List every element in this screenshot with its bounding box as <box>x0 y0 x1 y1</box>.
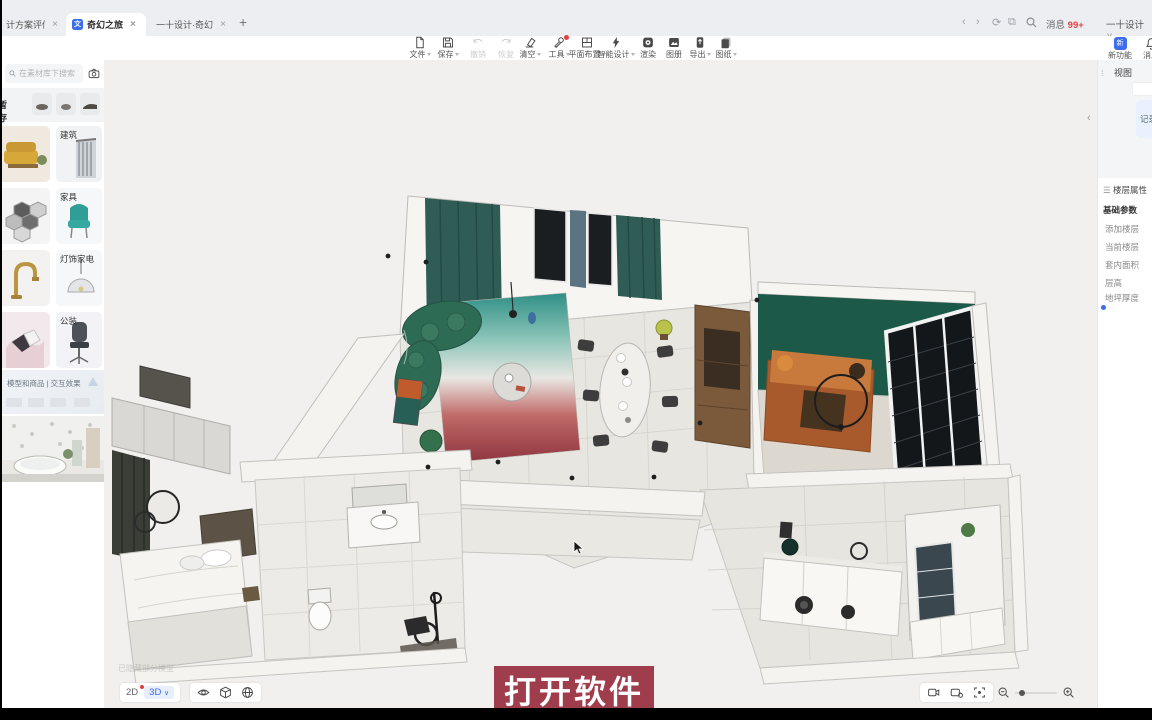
floorplan-3d-view <box>104 60 1097 708</box>
promo-banner[interactable]: 模型和商品 | 交互效果 <box>2 370 104 414</box>
zoom-slider[interactable] <box>1015 692 1057 694</box>
category-card-furniture[interactable]: 家具 <box>56 188 102 244</box>
bell-icon <box>1145 37 1152 50</box>
viewport-3d[interactable]: 已隐藏部分模型 2D 3D ∨ <box>104 60 1097 708</box>
banner-logo-icon <box>86 374 100 388</box>
partner-logo <box>50 398 66 407</box>
save-icon <box>441 36 455 49</box>
panel-row-slab-thickness[interactable]: 地坪厚度 <box>1105 292 1139 304</box>
camera-settings-button[interactable] <box>950 686 963 699</box>
hidden-items-watermark: 已隐藏部分模型 <box>118 663 174 674</box>
notifications-button[interactable]: 消息 <box>1136 37 1152 61</box>
close-icon[interactable]: × <box>220 19 226 30</box>
app-window: 计方案评估 - 副本 × 文 奇幻之旅 × 一十设计·奇幻之旅 × + ‹ › … <box>0 0 1152 720</box>
record-view-button[interactable]: 记录 <box>1136 100 1152 138</box>
zoom-controls <box>997 683 1075 702</box>
tab-title: 一十设计·奇幻之旅 <box>156 18 213 31</box>
sheets-icon <box>719 36 733 49</box>
screenshot-button[interactable] <box>927 686 940 699</box>
tiles-image <box>0 188 50 244</box>
zoom-in-icon[interactable] <box>1062 686 1075 699</box>
messages-badge: 99+ <box>1068 20 1084 31</box>
undo-icon <box>471 36 485 49</box>
back-icon[interactable]: ‹ <box>962 16 966 28</box>
file-icon <box>413 36 427 49</box>
category-card-commercial[interactable]: 公装 <box>56 312 102 368</box>
tab-title: 计方案评估 - 副本 <box>6 18 45 31</box>
view-section: ⁞ 视图 记录 <box>1098 60 1152 178</box>
partner-logo <box>28 398 44 407</box>
account-label: 一十设计 <box>1106 20 1144 31</box>
globe-button[interactable] <box>241 686 254 699</box>
promo-image-bathroom[interactable] <box>2 416 104 482</box>
panel-row-interior-area[interactable]: 套内面积 <box>1105 259 1139 271</box>
slider-dot[interactable] <box>1101 305 1106 310</box>
letterbox-left <box>0 0 2 720</box>
panel-row-add-floor[interactable]: 添加楼层 <box>1105 223 1139 235</box>
stash-thumbnail[interactable] <box>80 93 100 115</box>
visibility-eye-button[interactable] <box>197 686 210 699</box>
drag-handle-icon[interactable]: ⁞ <box>1101 68 1104 78</box>
messages-button[interactable]: 消息 99+ <box>1046 17 1084 31</box>
pillows-image <box>0 312 50 368</box>
eraser-icon <box>523 36 537 49</box>
tab-other-project[interactable]: 一十设计·奇幻之旅 × <box>150 13 232 36</box>
stash-thumbnail[interactable] <box>32 93 52 115</box>
drawings-button[interactable]: 图纸 <box>704 36 748 60</box>
zoom-out-icon[interactable] <box>997 686 1010 699</box>
close-icon[interactable]: × <box>130 19 136 30</box>
model-cube-button[interactable] <box>219 686 232 699</box>
menu-icon: ☰ <box>1103 185 1111 195</box>
refresh-icon[interactable]: ⟳ <box>992 16 1001 29</box>
close-icon[interactable]: × <box>52 19 58 30</box>
search-icon[interactable] <box>1026 17 1037 28</box>
category-card-lighting[interactable]: 灯饰家电 <box>56 250 102 306</box>
stash-thumbnail[interactable] <box>56 93 76 115</box>
faucet-image <box>0 250 50 306</box>
category-card-kitchenbath[interactable] <box>0 250 50 306</box>
new-features-button[interactable]: 新 新功能 <box>1105 37 1135 61</box>
material-sidebar: 暂存 建筑 <box>2 60 104 708</box>
view-header: 视图 <box>1114 68 1132 78</box>
partner-logo <box>6 398 22 407</box>
search-icon <box>9 69 16 78</box>
focus-view-button[interactable] <box>973 686 986 699</box>
floorplan-icon <box>580 36 594 49</box>
document-icon: 文 <box>72 19 83 30</box>
panel-row-floor-height[interactable]: 层高 <box>1105 277 1122 289</box>
category-card-hardfit[interactable] <box>0 188 50 244</box>
chevron-down-icon: ∨ <box>164 690 169 697</box>
mode-2d-button[interactable]: 2D <box>126 687 138 698</box>
category-card-softfit[interactable] <box>0 312 50 368</box>
panel-row-current-floor[interactable]: 当前楼层 <box>1105 241 1139 253</box>
search-input[interactable] <box>19 69 79 78</box>
collapse-panel-icon[interactable]: ‹ <box>1087 112 1091 124</box>
view-mode-switch[interactable]: 2D 3D ∨ <box>120 683 180 702</box>
share-icon[interactable]: ⧉ <box>1008 16 1016 29</box>
camera-controls <box>920 683 993 702</box>
floor-properties-header[interactable]: ☰ 楼层属性 <box>1103 184 1147 196</box>
category-card-fullhouse[interactable] <box>0 126 50 182</box>
mode-3d-button[interactable]: 3D ∨ <box>144 686 174 699</box>
view-thumbnail-card[interactable] <box>1132 82 1152 96</box>
magic-wand-icon <box>609 36 623 49</box>
stash-section[interactable]: 暂存 <box>2 88 104 122</box>
main-toolbar: 文件 保存 撤销 恢复 清空 工具 平面布置 智能设计 <box>0 36 1152 60</box>
partner-logo <box>74 398 90 407</box>
visibility-controls <box>190 683 261 702</box>
material-search[interactable] <box>5 64 83 83</box>
promo-banner-title: 模型和商品 | 交互效果 <box>7 378 81 389</box>
letterbox-bottom <box>0 708 1152 720</box>
camera-search-icon[interactable] <box>88 68 100 79</box>
tab-evaluation[interactable]: 计方案评估 - 副本 × <box>0 13 64 36</box>
tab-title: 奇幻之旅 <box>87 18 123 31</box>
forward-icon[interactable]: › <box>976 16 980 28</box>
browser-tab-bar: 计方案评估 - 副本 × 文 奇幻之旅 × 一十设计·奇幻之旅 × + ‹ › … <box>0 0 1152 36</box>
basic-params-tab[interactable]: 基础参数 <box>1103 204 1137 216</box>
new-tab-button[interactable]: + <box>239 14 247 30</box>
messages-label: 消息 <box>1046 20 1065 31</box>
zoom-slider-knob[interactable] <box>1019 690 1025 696</box>
category-card-building[interactable]: 建筑 <box>56 126 102 182</box>
properties-panel: ‹ ⁞ 视图 记录 ☰ 楼层属性 基础参数 添加楼层 当前楼层 套内面积 层高 … <box>1097 60 1152 708</box>
new-features-icon: 新 <box>1114 37 1127 50</box>
tab-current-project[interactable]: 文 奇幻之旅 × <box>66 13 146 36</box>
sofa-scene-image <box>0 126 50 182</box>
stash-label: 暂存 <box>0 98 28 124</box>
